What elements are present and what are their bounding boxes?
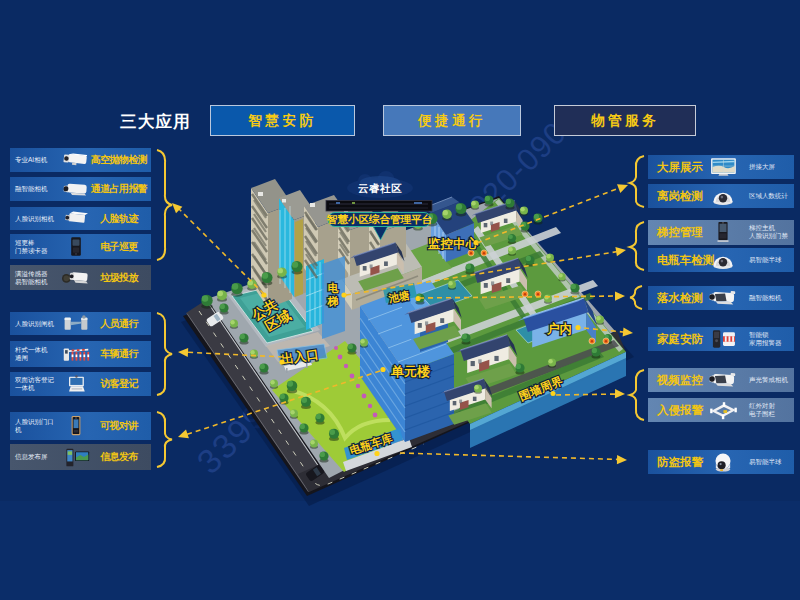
svg-text:梯: 梯 xyxy=(327,295,339,307)
svg-text:监控中心: 监控中心 xyxy=(428,236,479,251)
svg-text:户内: 户内 xyxy=(546,322,572,336)
svg-text:智慧小区综合管理平台: 智慧小区综合管理平台 xyxy=(326,213,433,225)
svg-text:云睿社区: 云睿社区 xyxy=(358,182,402,194)
svg-text:单元楼: 单元楼 xyxy=(390,364,431,379)
svg-text:电: 电 xyxy=(328,282,340,294)
